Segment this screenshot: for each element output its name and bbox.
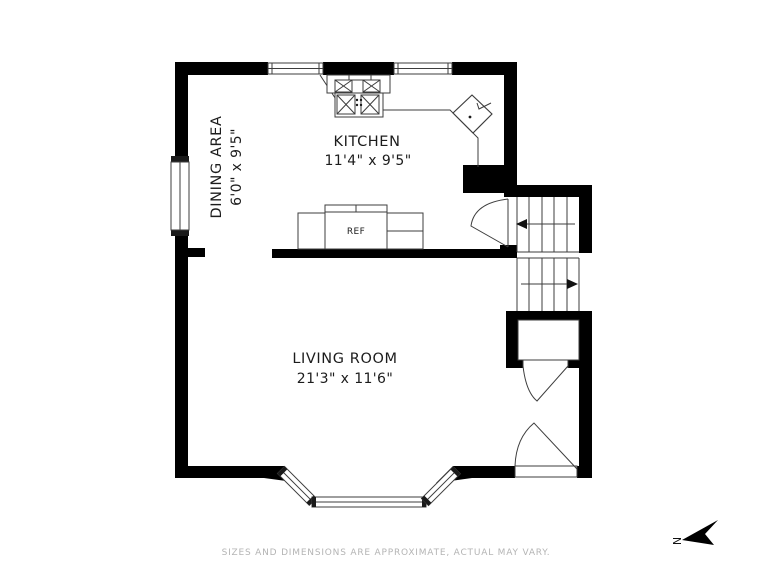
north-label: N <box>670 537 683 545</box>
wall-closet-bottom-right <box>568 360 580 368</box>
living-room-label: LIVING ROOM <box>292 351 397 367</box>
entry-door-swing <box>515 423 577 469</box>
wall-stair-right <box>579 185 592 253</box>
living-room-dimensions: 21'3" x 11'6" <box>297 371 393 387</box>
wall-stair-top <box>504 185 592 197</box>
sink <box>453 95 492 133</box>
door-threshold <box>515 466 577 477</box>
window-dining-left <box>171 156 189 236</box>
wall-left-lower <box>175 232 188 478</box>
north-arrow-icon <box>682 520 718 545</box>
refrigerator-counter: REF <box>298 205 423 249</box>
stove-handle <box>349 75 371 80</box>
floor-plan-page: REF <box>0 0 768 576</box>
wall-bottom-3 <box>577 466 592 478</box>
wall-closet-bottom-left <box>506 360 523 368</box>
wall-kitchen-right <box>504 62 517 172</box>
bay-window <box>277 466 460 507</box>
stove <box>327 75 390 117</box>
window-top-right <box>394 63 452 74</box>
bay-window-center-pane <box>312 497 426 507</box>
closet-door <box>523 366 568 401</box>
wall-closet-left <box>506 311 518 368</box>
closet-interior <box>518 320 579 360</box>
burner-top-left <box>335 80 352 92</box>
entry-door <box>515 423 577 477</box>
kitchen-dimensions: 11'4" x 9'5" <box>324 153 411 169</box>
wall-top-1 <box>175 62 268 75</box>
kitchen-label: KITCHEN <box>333 134 400 150</box>
burner-bottom-right <box>361 95 379 114</box>
door-kitchen-to-stairs <box>471 199 508 247</box>
compass: N <box>670 520 718 545</box>
wall-divider <box>272 249 517 258</box>
burner-bottom-left <box>337 95 355 114</box>
staircase-lower-flight <box>517 258 579 311</box>
wall-right-lower <box>579 311 592 478</box>
wall-dining-stub <box>175 248 205 257</box>
floor-plan: REF <box>0 0 768 576</box>
staircase-upper-flight <box>516 197 579 252</box>
wall-left-upper <box>175 62 188 160</box>
sink-drain <box>469 116 472 119</box>
refrigerator-label: REF <box>347 227 365 237</box>
sink-basin <box>453 95 492 133</box>
stair-arrow-down-icon <box>521 279 578 289</box>
window-top-left <box>268 63 323 74</box>
wall-top-2 <box>323 62 394 75</box>
bay-window-right-pane <box>421 467 460 506</box>
counter-left-of-fridge <box>298 213 325 249</box>
bay-window-left-pane <box>277 466 316 505</box>
dining-dimensions: 6'0" x 9'5" <box>229 128 245 206</box>
burner-top-right <box>363 80 380 92</box>
dining-label: DINING AREA <box>209 116 225 219</box>
closet <box>518 320 579 401</box>
stair-arrow-up-icon <box>516 219 575 229</box>
disclaimer-text: SIZES AND DIMENSIONS ARE APPROXIMATE, AC… <box>222 548 551 558</box>
